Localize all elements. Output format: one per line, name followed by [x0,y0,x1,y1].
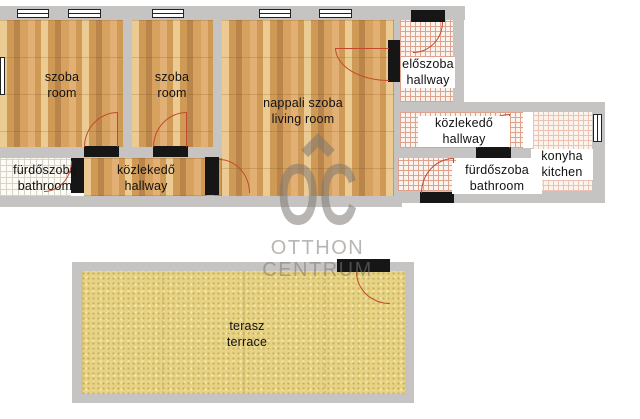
floor-plan: OC OTTHON CENTRUM szoba room szoba room … [0,0,640,419]
living-room-label-hu: nappali szoba [223,96,383,112]
living-room-label: nappali szoba living room [223,96,383,127]
entry-door-icon [411,10,445,22]
window-icon [593,114,602,142]
wall-entry-right [453,6,464,103]
door-sill-icon [84,146,119,157]
hallway-right-label: közlekedő hallway [418,116,510,147]
hallway-right-label-hu: közlekedő [419,116,509,132]
hallway-right-label-en: hallway [419,132,509,148]
door-sill-icon [476,147,511,158]
terrace-label: terasz terrace [187,319,307,350]
bathroom-left-label: fürdőszoba bathroom [0,163,90,194]
hallway-left-label-hu: közlekedő [96,163,196,179]
otthon-centrum-watermark: OC OTTHON CENTRUM [235,130,400,281]
window-icon [259,9,291,18]
door-sill-icon [420,192,454,203]
door-jamb-icon [388,40,400,82]
wall-hallway2-bottom [394,148,533,158]
window-icon [319,9,352,18]
bathroom-left-label-en: bathroom [0,179,90,195]
terrace-label-en: terrace [187,335,307,351]
terrace-label-hu: terasz [187,319,307,335]
entry-hall-label-en: hallway [402,73,454,89]
room2-label-hu: szoba [122,70,222,86]
door-sill-icon [153,146,188,157]
watermark-monogram: OC [266,162,368,229]
wall-mid-right [394,102,605,112]
hallway-left-label: közlekedő hallway [96,163,196,194]
window-icon [0,57,5,95]
room2-label-en: room [122,86,222,102]
hallway-left-label-en: hallway [96,179,196,195]
living-room-label-en: living room [223,112,383,128]
bathroom-right-label: fürdőszoba bathroom [452,163,542,194]
entry-hall-label: előszoba hallway [401,57,455,88]
door-jamb-icon [205,157,219,195]
entry-hall-label-hu: előszoba [402,57,454,73]
room1-label: szoba room [12,70,112,101]
room2-label: szoba room [122,70,222,101]
room1-label-hu: szoba [12,70,112,86]
bathroom-right-label-hu: fürdőszoba [453,163,541,179]
window-icon [152,9,184,18]
watermark-line2: CENTRUM [235,260,400,282]
window-icon [68,9,101,18]
room1-label-en: room [12,86,112,102]
window-icon [17,9,49,18]
bathroom-right-label-en: bathroom [453,179,541,195]
bathroom-left-label-hu: fürdőszoba [0,163,90,179]
